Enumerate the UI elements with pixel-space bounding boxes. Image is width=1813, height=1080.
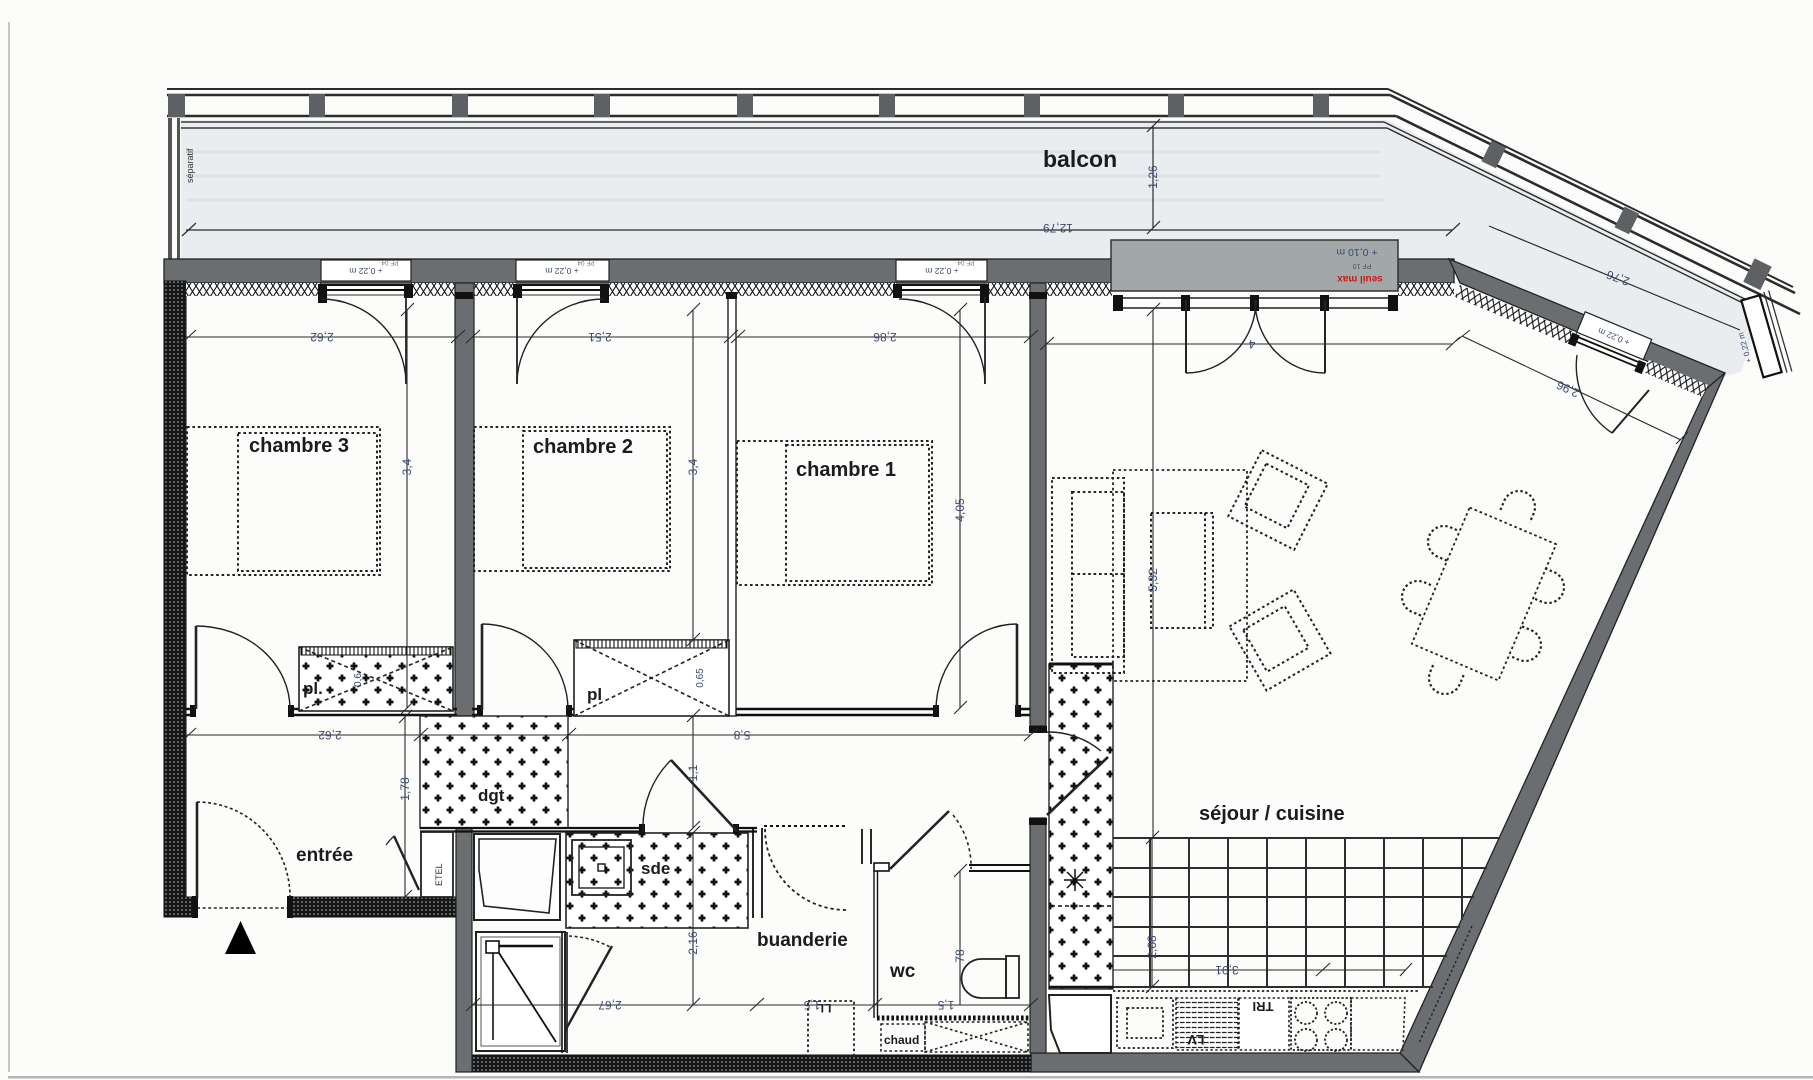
svg-text:3,4: 3,4 [686,458,700,475]
svg-text:5,32: 5,32 [1146,568,1160,592]
svg-text:PF 04: PF 04 [957,259,975,266]
svg-text:séparatif: séparatif [185,148,195,183]
svg-text:+ 0,22 m: + 0,22 m [925,266,958,276]
svg-text:1,5: 1,5 [937,998,954,1012]
svg-text:chambre 3: chambre 3 [249,435,349,457]
svg-text:1,1: 1,1 [686,764,700,781]
svg-text:2,62: 2,62 [318,728,342,742]
svg-text:1,78: 1,78 [398,777,412,801]
svg-text:2,67: 2,67 [598,998,622,1012]
svg-text:wc: wc [889,961,916,982]
svg-text:5,8: 5,8 [733,728,750,742]
svg-text:2,86: 2,86 [873,330,897,344]
svg-text:séjour / cuisine: séjour / cuisine [1199,803,1345,825]
svg-text:4,05: 4,05 [953,498,967,522]
svg-text:pl.: pl. [303,679,323,698]
svg-text:+ 0,22 m: + 0,22 m [545,266,578,276]
svg-text:PF 04: PF 04 [577,259,595,266]
svg-text:PF 10: PF 10 [1353,262,1372,269]
svg-text:1,26: 1,26 [1146,165,1160,189]
svg-text:2,51: 2,51 [588,330,612,344]
svg-text:0,6: 0,6 [353,673,364,687]
svg-text:2,62: 2,62 [310,330,334,344]
svg-text:2,08: 2,08 [1145,935,1159,959]
svg-text:chaud: chaud [884,1033,919,1047]
svg-text:chambre 1: chambre 1 [796,459,896,481]
svg-text:dgt: dgt [478,786,505,805]
svg-text:TRI: TRI [1253,999,1274,1014]
svg-text:sde: sde [641,859,670,878]
svg-text:+ 0,22 m: + 0,22 m [349,266,382,276]
svg-text:chambre 2: chambre 2 [533,436,633,458]
svg-text:LV: LV [1187,1032,1205,1048]
svg-text:buanderie: buanderie [757,930,848,951]
svg-text:1,5: 1,5 [803,998,820,1012]
svg-text:ETEL: ETEL [434,863,444,886]
svg-text:3,91: 3,91 [1215,963,1239,977]
svg-text:12,79: 12,79 [1043,221,1073,235]
svg-text:entrée: entrée [296,845,353,866]
svg-text:2,16: 2,16 [686,931,700,955]
svg-text:pl: pl [587,685,602,704]
svg-text:+ 0,10 m: + 0,10 m [1336,246,1377,258]
svg-text:4: 4 [1248,337,1255,351]
svg-text:seuil max: seuil max [1337,273,1383,284]
svg-text:78: 78 [953,949,967,963]
svg-text:0,65: 0,65 [695,668,706,688]
svg-text:PF 04: PF 04 [381,259,399,266]
svg-text:balcon: balcon [1043,146,1117,172]
svg-text:3,4: 3,4 [400,458,414,475]
